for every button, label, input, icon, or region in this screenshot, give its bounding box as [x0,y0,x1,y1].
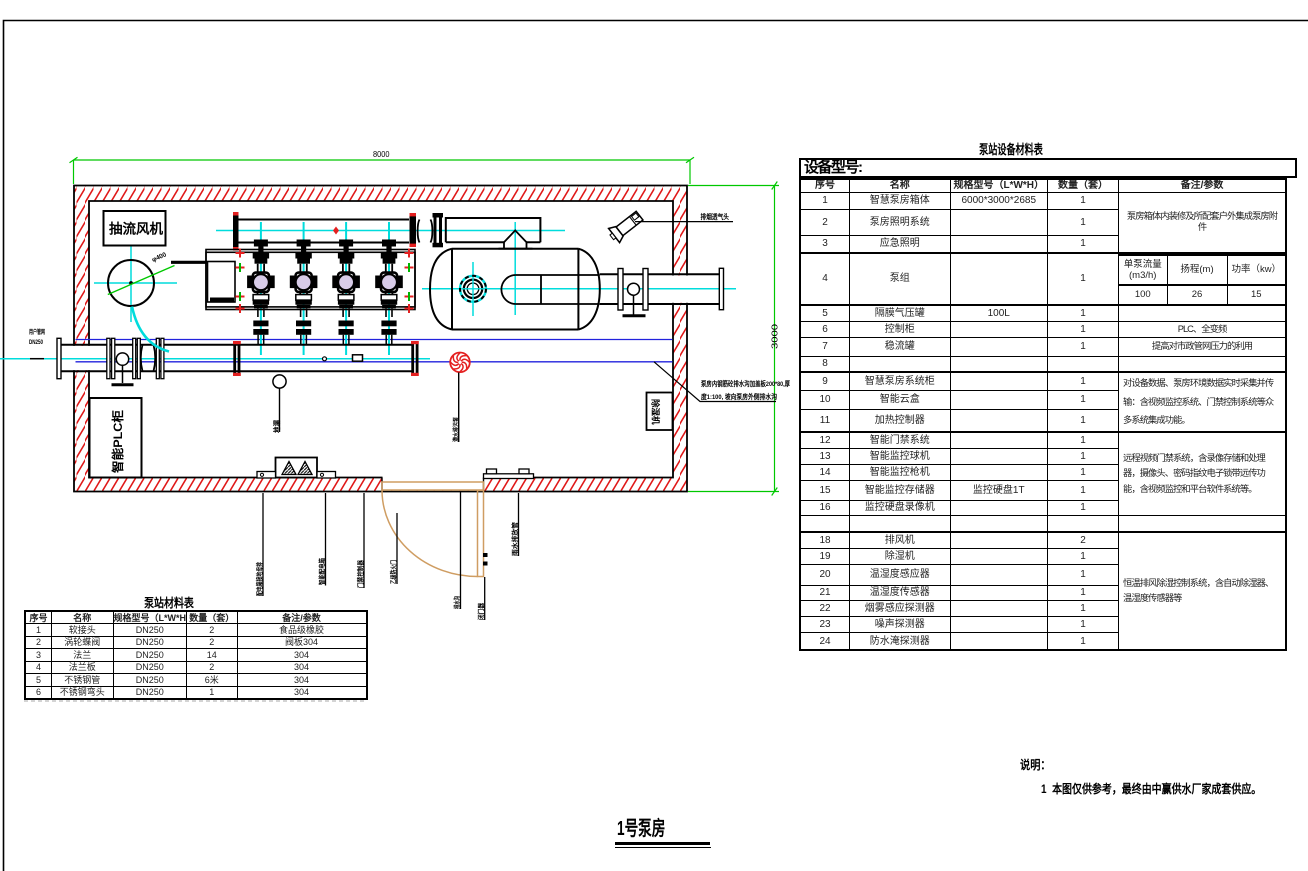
svg-text:门禁控制器: 门禁控制器 [356,560,365,588]
svg-text:乙级防火门: 乙级防火门 [389,560,398,584]
svg-text:潜水排污泵: 潜水排污泵 [451,417,460,442]
svg-text:3000: 3000 [771,323,780,349]
svg-text:φ400: φ400 [151,251,168,264]
svg-text:配电箱接地母排: 配电箱接地母排 [255,562,264,596]
svg-text:智能PLC柜: 智能PLC柜 [110,410,125,474]
svg-text:排烟透气头: 排烟透气头 [701,212,730,221]
svg-text:闭门器: 闭门器 [476,603,485,620]
svg-text:DN250: DN250 [29,339,43,346]
svg-text:雨水排放管: 雨水排放管 [510,521,519,556]
svg-text:泵房内钢筋砼排水沟加盖板200*80,厚: 泵房内钢筋砼排水沟加盖板200*80,厚 [700,379,790,388]
svg-text:用户管网: 用户管网 [28,328,45,336]
svg-text:排水沟: 排水沟 [452,596,461,609]
svg-text:智能配电箱: 智能配电箱 [317,558,326,585]
svg-text:地漏: 地漏 [272,420,281,433]
svg-text:抽流风机: 抽流风机 [109,221,163,237]
svg-text:除湿机: 除湿机 [651,399,661,425]
svg-text:度1:100, 坡向泵房外侧排水沟: 度1:100, 坡向泵房外侧排水沟 [701,392,777,401]
svg-text:8000: 8000 [373,150,390,159]
